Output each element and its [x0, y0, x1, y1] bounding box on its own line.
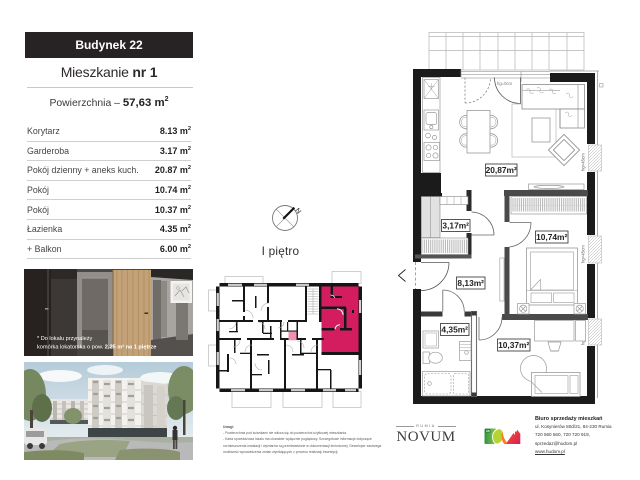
svg-text:HD: HD: [486, 429, 490, 433]
svg-text:10,37m²: 10,37m²: [498, 340, 529, 350]
svg-text:hg=45cm: hg=45cm: [581, 153, 586, 171]
svg-text:4,35m²: 4,35m²: [441, 325, 468, 335]
svg-text:hg=45cm: hg=45cm: [581, 245, 586, 263]
svg-text:komórka lokatorska o pow. 2,25: komórka lokatorska o pow. 2,25 m² na 1 p…: [37, 344, 156, 351]
svg-text:* Do lokalu przynależy: * Do lokalu przynależy: [37, 336, 93, 342]
svg-text:20,87m²: 20,87m²: [486, 165, 517, 175]
svg-text:hg=0cm: hg=0cm: [497, 81, 513, 86]
svg-text:8,13m²: 8,13m²: [457, 278, 484, 288]
svg-text:3,17m²: 3,17m²: [442, 221, 469, 231]
svg-text:10,74m²: 10,74m²: [536, 232, 567, 242]
